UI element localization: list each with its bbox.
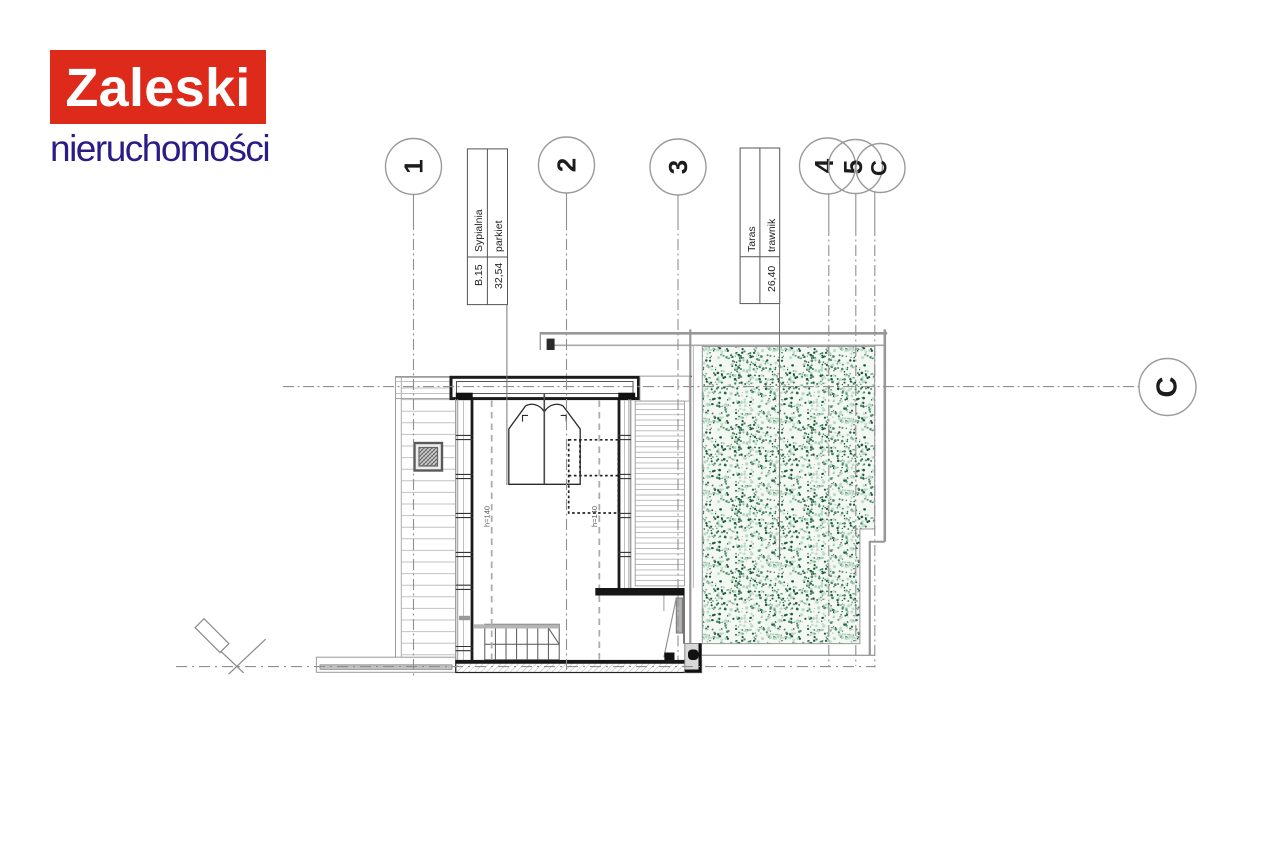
svg-text:1: 1 (399, 159, 429, 173)
svg-text:2: 2 (552, 158, 582, 172)
svg-text:trawnik: trawnik (766, 218, 778, 252)
svg-text:Sypialnia: Sypialnia (473, 209, 485, 252)
svg-text:4: 4 (809, 158, 839, 173)
svg-text:Taras: Taras (746, 226, 758, 252)
svg-text:32,54: 32,54 (493, 263, 505, 289)
svg-text:B.15: B.15 (473, 264, 485, 286)
svg-text:h=140: h=140 (590, 506, 599, 527)
svg-text:26,40: 26,40 (766, 266, 778, 292)
svg-text:C: C (867, 160, 892, 176)
svg-text:parkiet: parkiet (493, 220, 505, 252)
svg-text:C: C (1152, 376, 1184, 397)
svg-text:3: 3 (663, 160, 693, 174)
svg-text:5: 5 (838, 160, 868, 174)
svg-text:h=140: h=140 (482, 506, 491, 527)
